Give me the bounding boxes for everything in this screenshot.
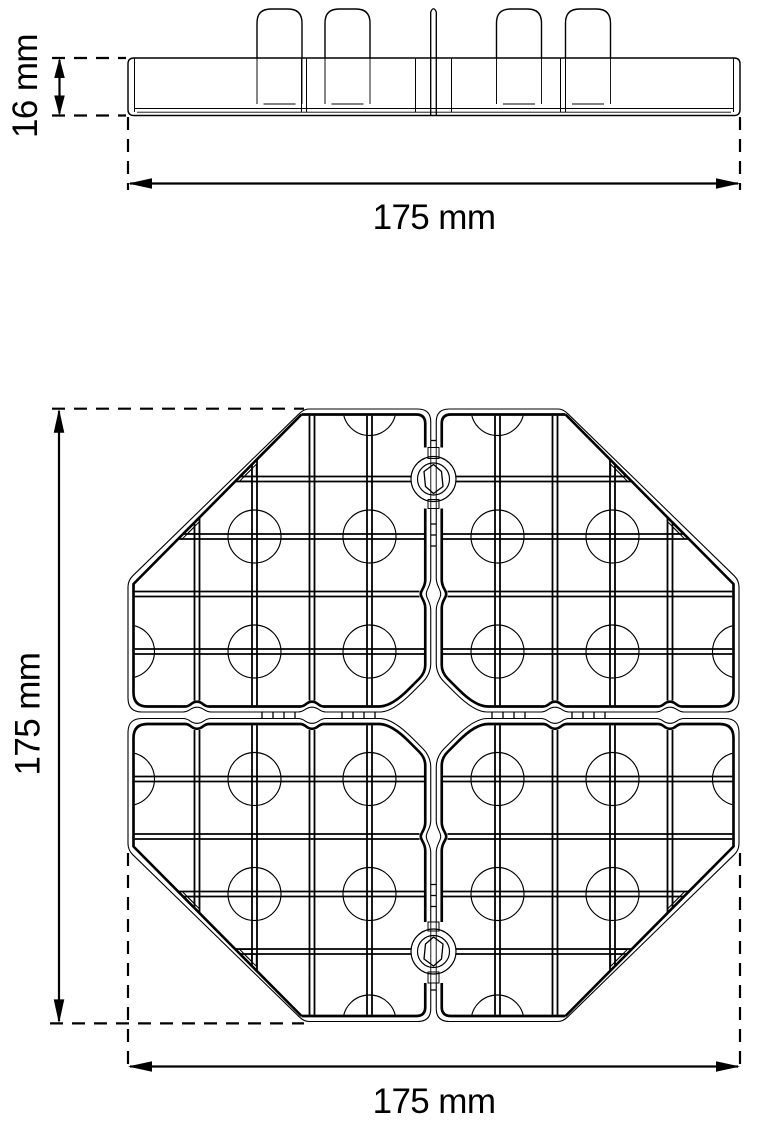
svg-text:175 mm: 175 mm [373, 1082, 496, 1121]
svg-text:175 mm: 175 mm [9, 653, 48, 776]
svg-text:175 mm: 175 mm [373, 198, 496, 237]
svg-text:16 mm: 16 mm [6, 34, 45, 138]
